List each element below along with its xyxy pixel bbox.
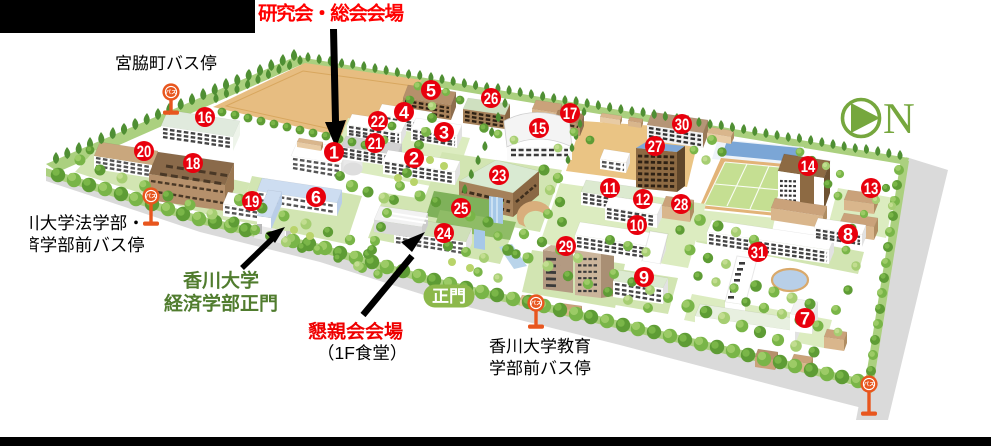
svg-text:2: 2	[409, 148, 419, 168]
svg-text:4: 4	[399, 102, 409, 122]
svg-text:懇親会会場: 懇親会会場	[308, 321, 403, 343]
svg-text:21: 21	[368, 135, 383, 153]
svg-text:15: 15	[532, 120, 547, 138]
svg-text:N: N	[883, 94, 915, 143]
svg-text:17: 17	[563, 105, 578, 123]
svg-text:7: 7	[800, 308, 810, 328]
svg-text:12: 12	[636, 191, 651, 209]
svg-text:25: 25	[454, 200, 469, 218]
svg-text:経済学部正門: 経済学部正門	[164, 293, 278, 315]
svg-text:23: 23	[492, 167, 507, 185]
svg-text:香川大学: 香川大学	[182, 270, 259, 292]
svg-text:9: 9	[639, 267, 649, 287]
svg-text:正門: 正門	[432, 287, 466, 306]
svg-text:10: 10	[630, 217, 645, 235]
svg-text:1: 1	[329, 142, 339, 162]
svg-text:バス: バス	[530, 300, 542, 307]
svg-text:宮脇町バス停: 宮脇町バス停	[115, 54, 217, 73]
svg-text:29: 29	[559, 238, 574, 256]
svg-text:バス: バス	[165, 89, 177, 96]
svg-text:26: 26	[484, 90, 499, 108]
svg-text:研究会・総会会場: 研究会・総会会場	[258, 3, 404, 25]
svg-text:31: 31	[751, 244, 766, 262]
svg-text:バス: バス	[145, 193, 157, 200]
svg-text:バス: バス	[863, 381, 875, 388]
svg-text:24: 24	[437, 225, 452, 243]
svg-text:16: 16	[198, 109, 213, 127]
svg-text:22: 22	[371, 113, 386, 131]
svg-text:学部前バス停: 学部前バス停	[489, 359, 591, 378]
svg-text:20: 20	[137, 143, 152, 161]
svg-text:13: 13	[864, 180, 879, 198]
svg-text:済学部前バス停: 済学部前バス停	[22, 235, 145, 255]
svg-text:27: 27	[648, 138, 663, 156]
svg-text:30: 30	[675, 116, 690, 134]
svg-text:6: 6	[311, 187, 321, 207]
svg-text:（1F食堂）: （1F食堂）	[317, 343, 407, 363]
svg-text:香川大学教育: 香川大学教育	[489, 337, 591, 356]
svg-text:19: 19	[245, 193, 260, 211]
svg-text:8: 8	[843, 224, 853, 244]
svg-text:18: 18	[186, 155, 201, 173]
svg-text:5: 5	[426, 80, 436, 100]
svg-text:28: 28	[674, 196, 689, 214]
svg-text:11: 11	[603, 180, 618, 198]
svg-text:川大学法学部・: 川大学法学部・	[22, 213, 145, 233]
svg-text:14: 14	[801, 158, 816, 176]
svg-text:3: 3	[439, 122, 449, 142]
